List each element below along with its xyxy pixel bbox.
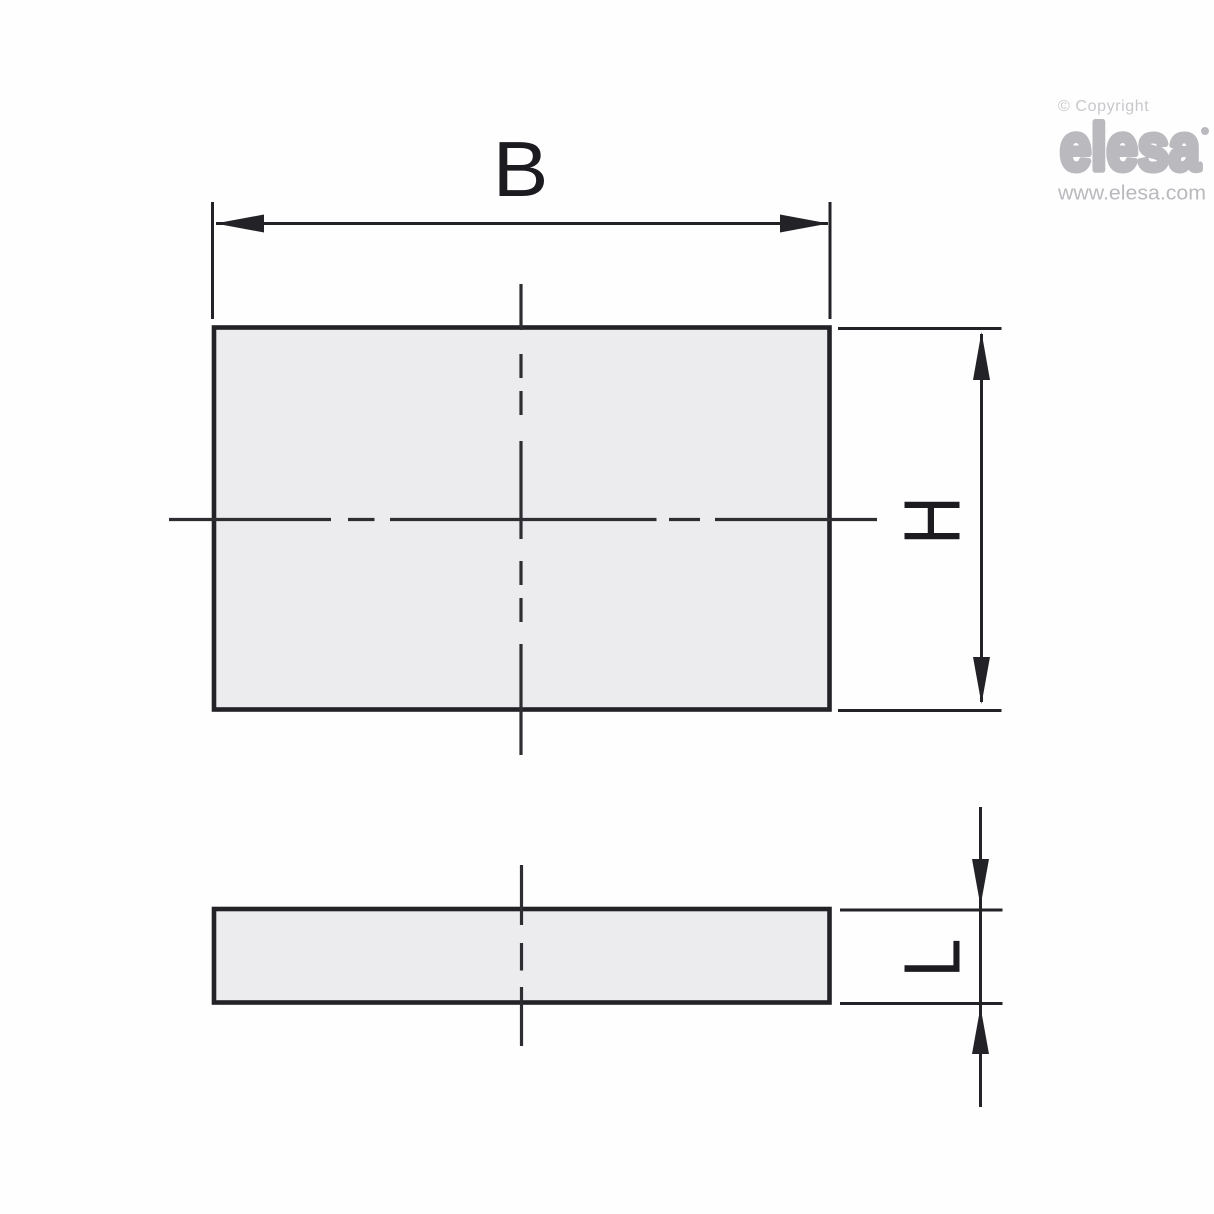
svg-text:L: L bbox=[887, 938, 976, 977]
svg-text:H: H bbox=[887, 496, 977, 545]
svg-text:www.elesa.com: www.elesa.com bbox=[1057, 183, 1206, 205]
svg-text:elesa: elesa bbox=[1060, 110, 1201, 184]
svg-text:B: B bbox=[493, 127, 549, 213]
